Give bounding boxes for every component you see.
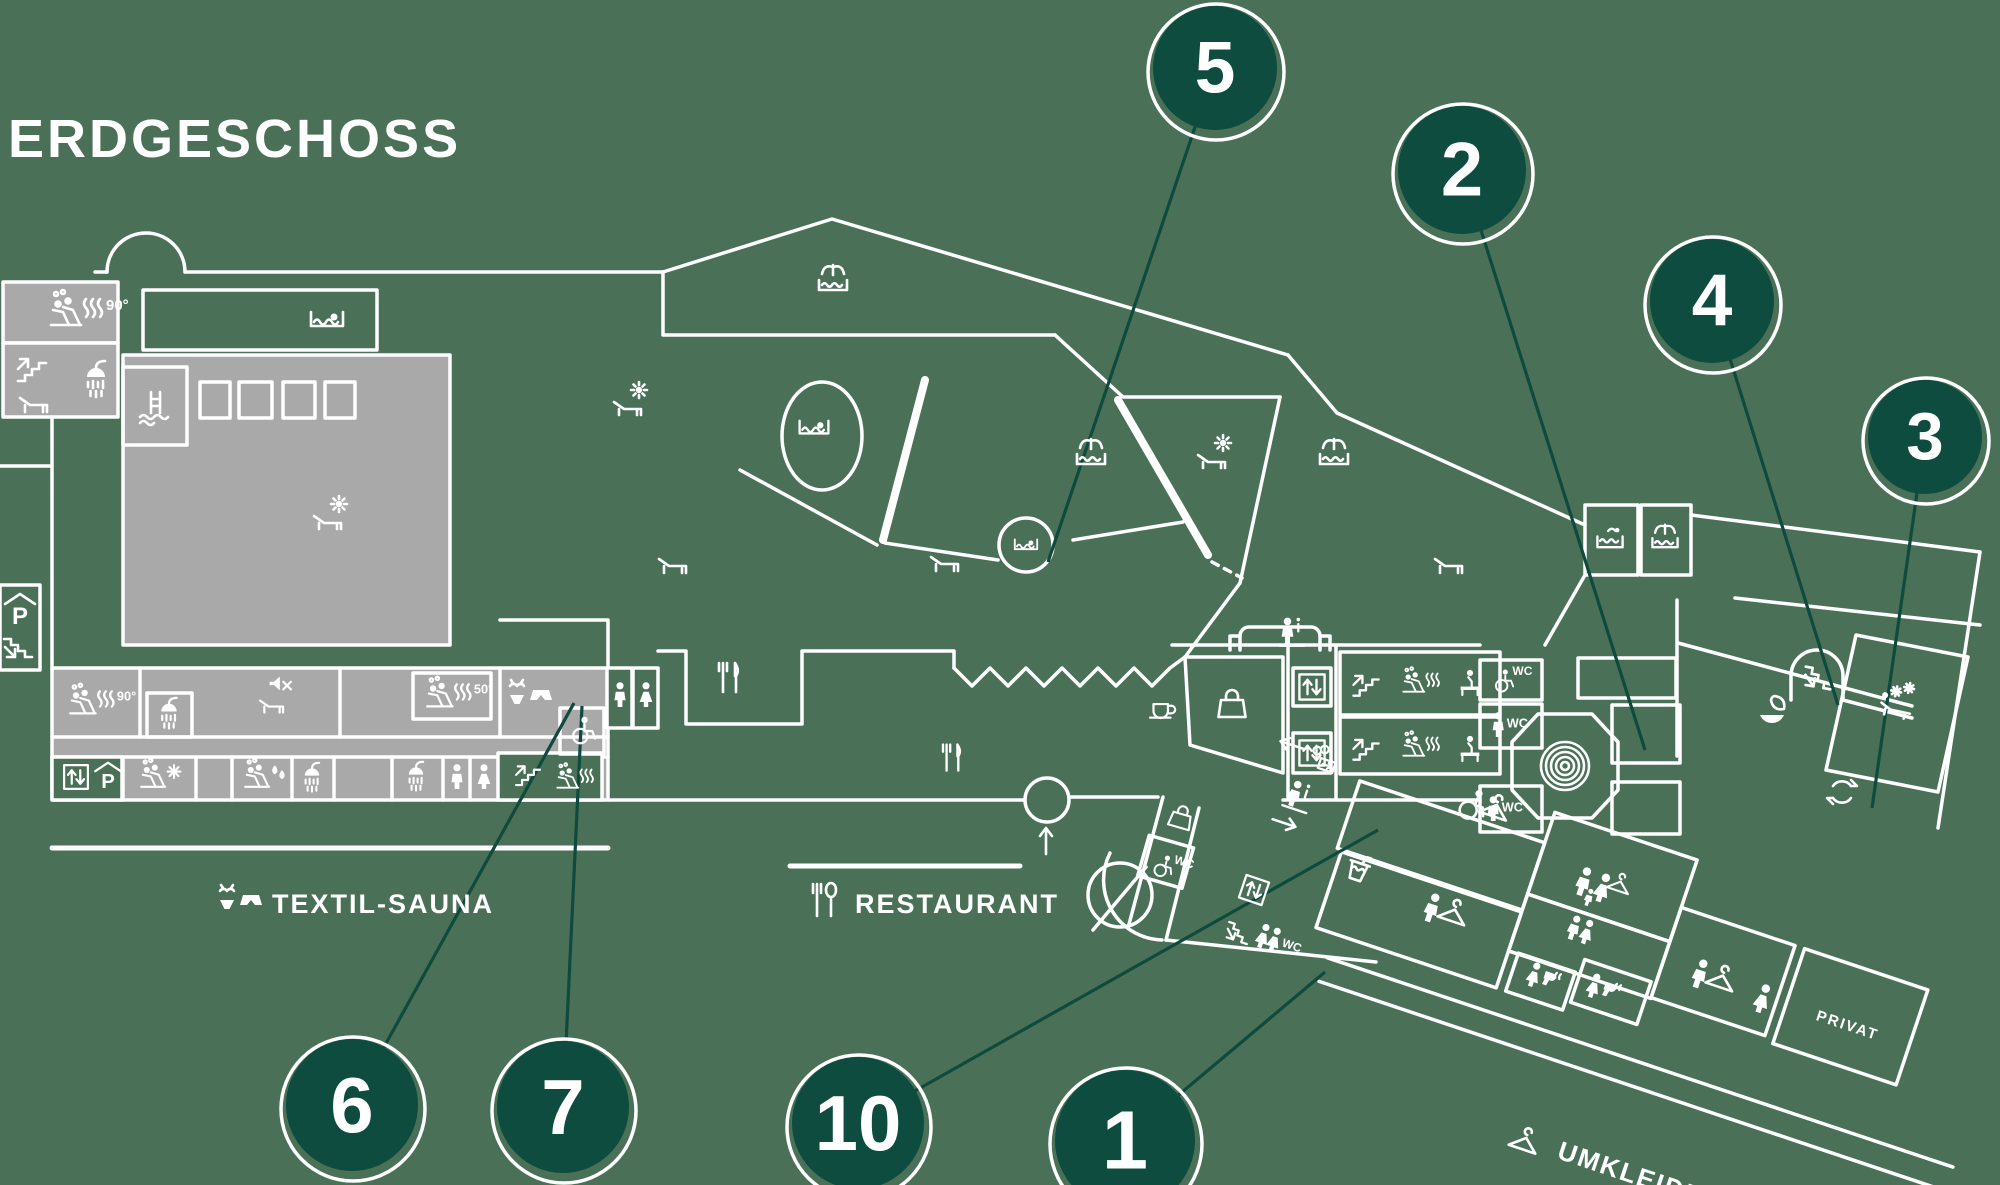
sauna-people-icon — [1403, 731, 1439, 756]
marker-6[interactable]: 6 — [281, 1037, 425, 1181]
marker-number: 10 — [815, 1079, 902, 1167]
svg-text:50°: 50° — [474, 682, 493, 697]
fountain-pool-icon — [1652, 525, 1677, 548]
bench-person-icon — [1461, 736, 1480, 761]
marker-number: 2 — [1441, 128, 1483, 213]
cutlery-icon — [719, 663, 738, 692]
elevator-icon — [1299, 674, 1324, 699]
hanger-icon — [1509, 1124, 1543, 1154]
marker-2-leader-line — [1462, 170, 1645, 750]
marker-number: 4 — [1692, 261, 1733, 342]
svg-text:WC: WC — [1502, 800, 1523, 815]
marker-number: 6 — [330, 1061, 373, 1149]
family-icon — [1570, 861, 1633, 917]
marker-3[interactable]: 3 — [1863, 378, 1989, 504]
spiral-icon — [1541, 742, 1589, 790]
woman-icon — [1751, 982, 1774, 1014]
cycle-icon — [1827, 780, 1857, 804]
bench-person-icon — [1461, 670, 1480, 695]
stairs-down-icon — [4, 639, 32, 657]
marker-number: 5 — [1195, 28, 1236, 109]
marker-number: 7 — [541, 1063, 584, 1151]
bag-icon — [1168, 803, 1195, 830]
person-hanger-icon — [1421, 891, 1471, 933]
wc-wheelchair-icon: WC — [1153, 848, 1196, 884]
sun-lounger-icon — [614, 382, 647, 415]
marker-10[interactable]: 10 — [787, 1055, 931, 1185]
swimmer-pool-icon — [311, 312, 343, 326]
marker-leader-lines — [352, 68, 1925, 1140]
swimwear-icon — [220, 885, 262, 909]
man-wc-icon: WC — [1493, 712, 1528, 737]
sun-lounger-icon — [1198, 435, 1231, 468]
label-textil-sauna: TEXTIL-SAUNA — [272, 889, 494, 919]
arrow-right-icon — [1271, 814, 1298, 833]
cup-icon — [1150, 704, 1175, 718]
floorplan-page: ERDGESCHOSS — [0, 0, 2000, 1185]
svg-text:P: P — [12, 603, 28, 630]
pool-waves-icon — [1597, 528, 1622, 547]
floorplan-walls — [0, 219, 2000, 1185]
marker-4-leader-line — [1712, 301, 1838, 705]
fountain-pool-icon — [819, 265, 847, 290]
marker-number: 1 — [1102, 1094, 1148, 1185]
marker-7[interactable]: 7 — [492, 1039, 636, 1183]
marker-5[interactable]: 5 — [1148, 4, 1284, 140]
parking-icon: P — [5, 594, 35, 630]
info-desk-icon — [1279, 618, 1304, 646]
sauna-people-icon — [1403, 667, 1439, 692]
person-hanger-icon — [1689, 957, 1739, 999]
swimmer-pool-icon — [1015, 539, 1037, 549]
fork-spoon-icon — [813, 883, 836, 916]
cutlery-icon — [943, 745, 960, 771]
lounger-icon — [931, 557, 958, 571]
marker-2[interactable]: 2 — [1393, 104, 1533, 244]
leaf-icon — [1760, 696, 1784, 723]
svg-text:90°: 90° — [117, 689, 136, 704]
stairs-down-icon — [1224, 922, 1251, 944]
lounger-icon — [659, 559, 686, 573]
label-umkleiden: UMKLEIDEN — [1554, 1135, 1727, 1185]
fountain-pool-icon — [1320, 439, 1348, 464]
people-pair-icon — [1565, 914, 1597, 946]
floorplan-svg: 90°P90°P50°WCWCWCWCWC TEXTIL-SAUNARESTAU… — [0, 0, 2000, 1185]
label-privat: PRIVAT — [1814, 1007, 1881, 1044]
swimmer-pool-icon — [800, 421, 829, 434]
marker-number: 3 — [1906, 400, 1943, 475]
marker-5-leader-line — [1048, 68, 1215, 562]
arrow-up-icon — [1040, 828, 1052, 854]
stairs-up-icon — [1353, 676, 1378, 696]
lounger-icon — [1435, 559, 1462, 573]
svg-text:WC: WC — [1507, 716, 1528, 731]
svg-text:90°: 90° — [106, 297, 129, 314]
marker-1[interactable]: 1 — [1050, 1068, 1202, 1185]
marker-4[interactable]: 4 — [1645, 237, 1781, 373]
bag-icon — [1219, 690, 1246, 717]
svg-text:P: P — [101, 771, 115, 793]
label-restaurant: RESTAURANT — [855, 889, 1059, 919]
numbered-markers: 524367101 — [281, 4, 1989, 1185]
stairs-up-icon — [1353, 740, 1378, 760]
svg-text:WC: WC — [1512, 664, 1532, 678]
